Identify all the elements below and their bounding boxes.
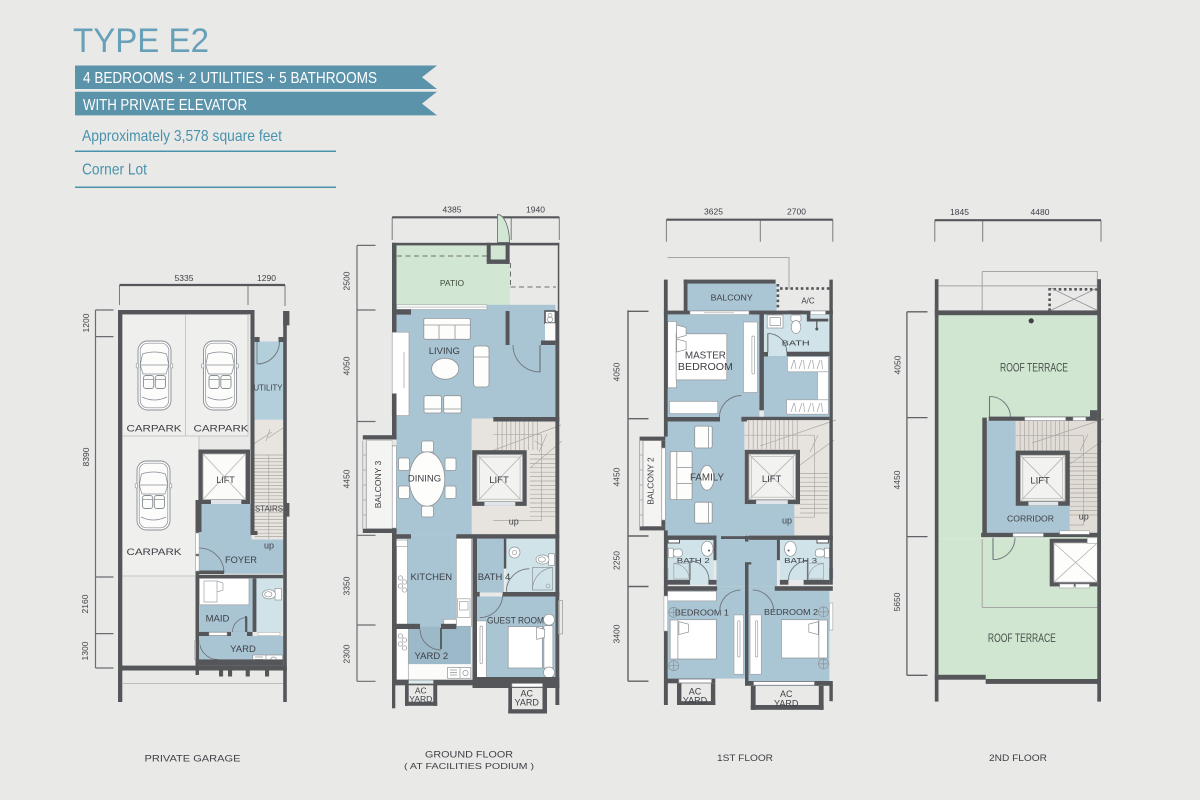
svg-text:BALCONY 2: BALCONY 2 <box>646 457 656 505</box>
svg-text:2700: 2700 <box>787 207 806 217</box>
svg-text:up: up <box>782 516 792 526</box>
svg-text:ROOF TERRACE: ROOF TERRACE <box>988 631 1056 645</box>
svg-text:2300: 2300 <box>342 644 352 663</box>
svg-text:LIFT: LIFT <box>1030 476 1050 487</box>
svg-text:CARPARK: CARPARK <box>194 424 250 435</box>
svg-text:AC: AC <box>780 689 793 699</box>
svg-text:5335: 5335 <box>175 273 194 283</box>
svg-text:UTILITY: UTILITY <box>254 384 284 393</box>
svg-text:BEDROOM: BEDROOM <box>678 362 733 373</box>
svg-text:BALCONY: BALCONY <box>711 293 753 303</box>
svg-text:KITCHEN: KITCHEN <box>410 572 452 583</box>
svg-text:8390: 8390 <box>81 447 91 466</box>
svg-text:1300: 1300 <box>80 641 90 660</box>
svg-text:up: up <box>264 541 274 551</box>
svg-text:CARPARK: CARPARK <box>127 547 183 558</box>
svg-text:BATH 4: BATH 4 <box>478 572 511 583</box>
svg-text:LIFT: LIFT <box>489 475 509 486</box>
svg-text:ROOF TERRACE: ROOF TERRACE <box>1000 361 1068 375</box>
svg-text:MASTER: MASTER <box>685 351 726 362</box>
svg-text:LIFT: LIFT <box>216 475 235 485</box>
svg-text:BEDROOM 2: BEDROOM 2 <box>764 607 818 617</box>
svg-text:up: up <box>1079 512 1089 522</box>
svg-text:3400: 3400 <box>612 624 622 643</box>
svg-text:1940: 1940 <box>526 205 545 215</box>
svg-text:YARD: YARD <box>683 695 708 705</box>
svg-text:4480: 4480 <box>1031 207 1050 217</box>
svg-text:YARD 2: YARD 2 <box>414 651 448 662</box>
svg-text:2250: 2250 <box>612 551 622 570</box>
svg-text:4050: 4050 <box>612 362 622 381</box>
svg-text:YARD: YARD <box>230 644 256 655</box>
svg-text:3350: 3350 <box>342 576 352 595</box>
svg-text:DINING: DINING <box>408 474 441 485</box>
svg-text:3625: 3625 <box>704 207 723 217</box>
svg-text:4050: 4050 <box>342 356 352 375</box>
svg-text:WITH PRIVATE ELEVATOR: WITH PRIVATE ELEVATOR <box>83 97 247 114</box>
svg-text:1200: 1200 <box>81 313 91 332</box>
svg-text:1290: 1290 <box>257 273 276 283</box>
svg-text:4450: 4450 <box>342 469 352 488</box>
svg-text:2500: 2500 <box>342 271 352 290</box>
svg-text:TYPE E2: TYPE E2 <box>73 22 209 60</box>
svg-text:PATIO: PATIO <box>440 278 465 288</box>
svg-text:1ST FLOOR: 1ST FLOOR <box>717 753 774 763</box>
svg-text:PRIVATE GARAGE: PRIVATE GARAGE <box>145 754 241 764</box>
svg-text:5650: 5650 <box>892 592 902 611</box>
svg-text:MAID: MAID <box>206 614 230 625</box>
svg-text:BEDROOM 1: BEDROOM 1 <box>675 607 729 617</box>
svg-text:YARD: YARD <box>774 699 799 709</box>
svg-text:up: up <box>509 517 519 527</box>
svg-text:4385: 4385 <box>443 205 462 215</box>
svg-text:BATH: BATH <box>782 341 810 348</box>
svg-text:LIFT: LIFT <box>762 474 782 485</box>
svg-text:LIVING: LIVING <box>429 346 460 357</box>
svg-text:STAIRS: STAIRS <box>255 504 283 514</box>
svg-text:FOYER: FOYER <box>225 555 257 566</box>
svg-text:( AT FACILITIES PODIUM ): ( AT FACILITIES PODIUM ) <box>404 761 534 771</box>
svg-text:CARPARK: CARPARK <box>127 424 183 435</box>
svg-text:Approximately 3,578 square fee: Approximately 3,578 square feet <box>82 128 282 145</box>
svg-text:2160: 2160 <box>80 594 90 613</box>
svg-text:FAMILY: FAMILY <box>690 472 724 483</box>
svg-text:YARD: YARD <box>409 694 432 704</box>
svg-text:Corner Lot: Corner Lot <box>82 162 147 179</box>
svg-text:BATH 3: BATH 3 <box>784 558 817 565</box>
svg-text:A/C: A/C <box>801 297 815 306</box>
svg-text:BALCONY 3: BALCONY 3 <box>373 460 383 508</box>
svg-text:4 BEDROOMS + 2 UTILITIES + 5 B: 4 BEDROOMS + 2 UTILITIES + 5 BATHROOMS <box>83 70 377 87</box>
svg-text:1845: 1845 <box>950 207 969 217</box>
svg-text:CORRIDOR: CORRIDOR <box>1007 514 1054 524</box>
svg-text:4450: 4450 <box>892 470 902 489</box>
svg-text:2ND FLOOR: 2ND FLOOR <box>989 753 1048 763</box>
svg-text:4450: 4450 <box>612 467 622 486</box>
svg-text:GUEST ROOM: GUEST ROOM <box>487 615 544 626</box>
svg-text:4050: 4050 <box>893 355 903 374</box>
svg-text:GROUND FLOOR: GROUND FLOOR <box>425 750 514 760</box>
svg-text:YARD: YARD <box>515 698 540 708</box>
